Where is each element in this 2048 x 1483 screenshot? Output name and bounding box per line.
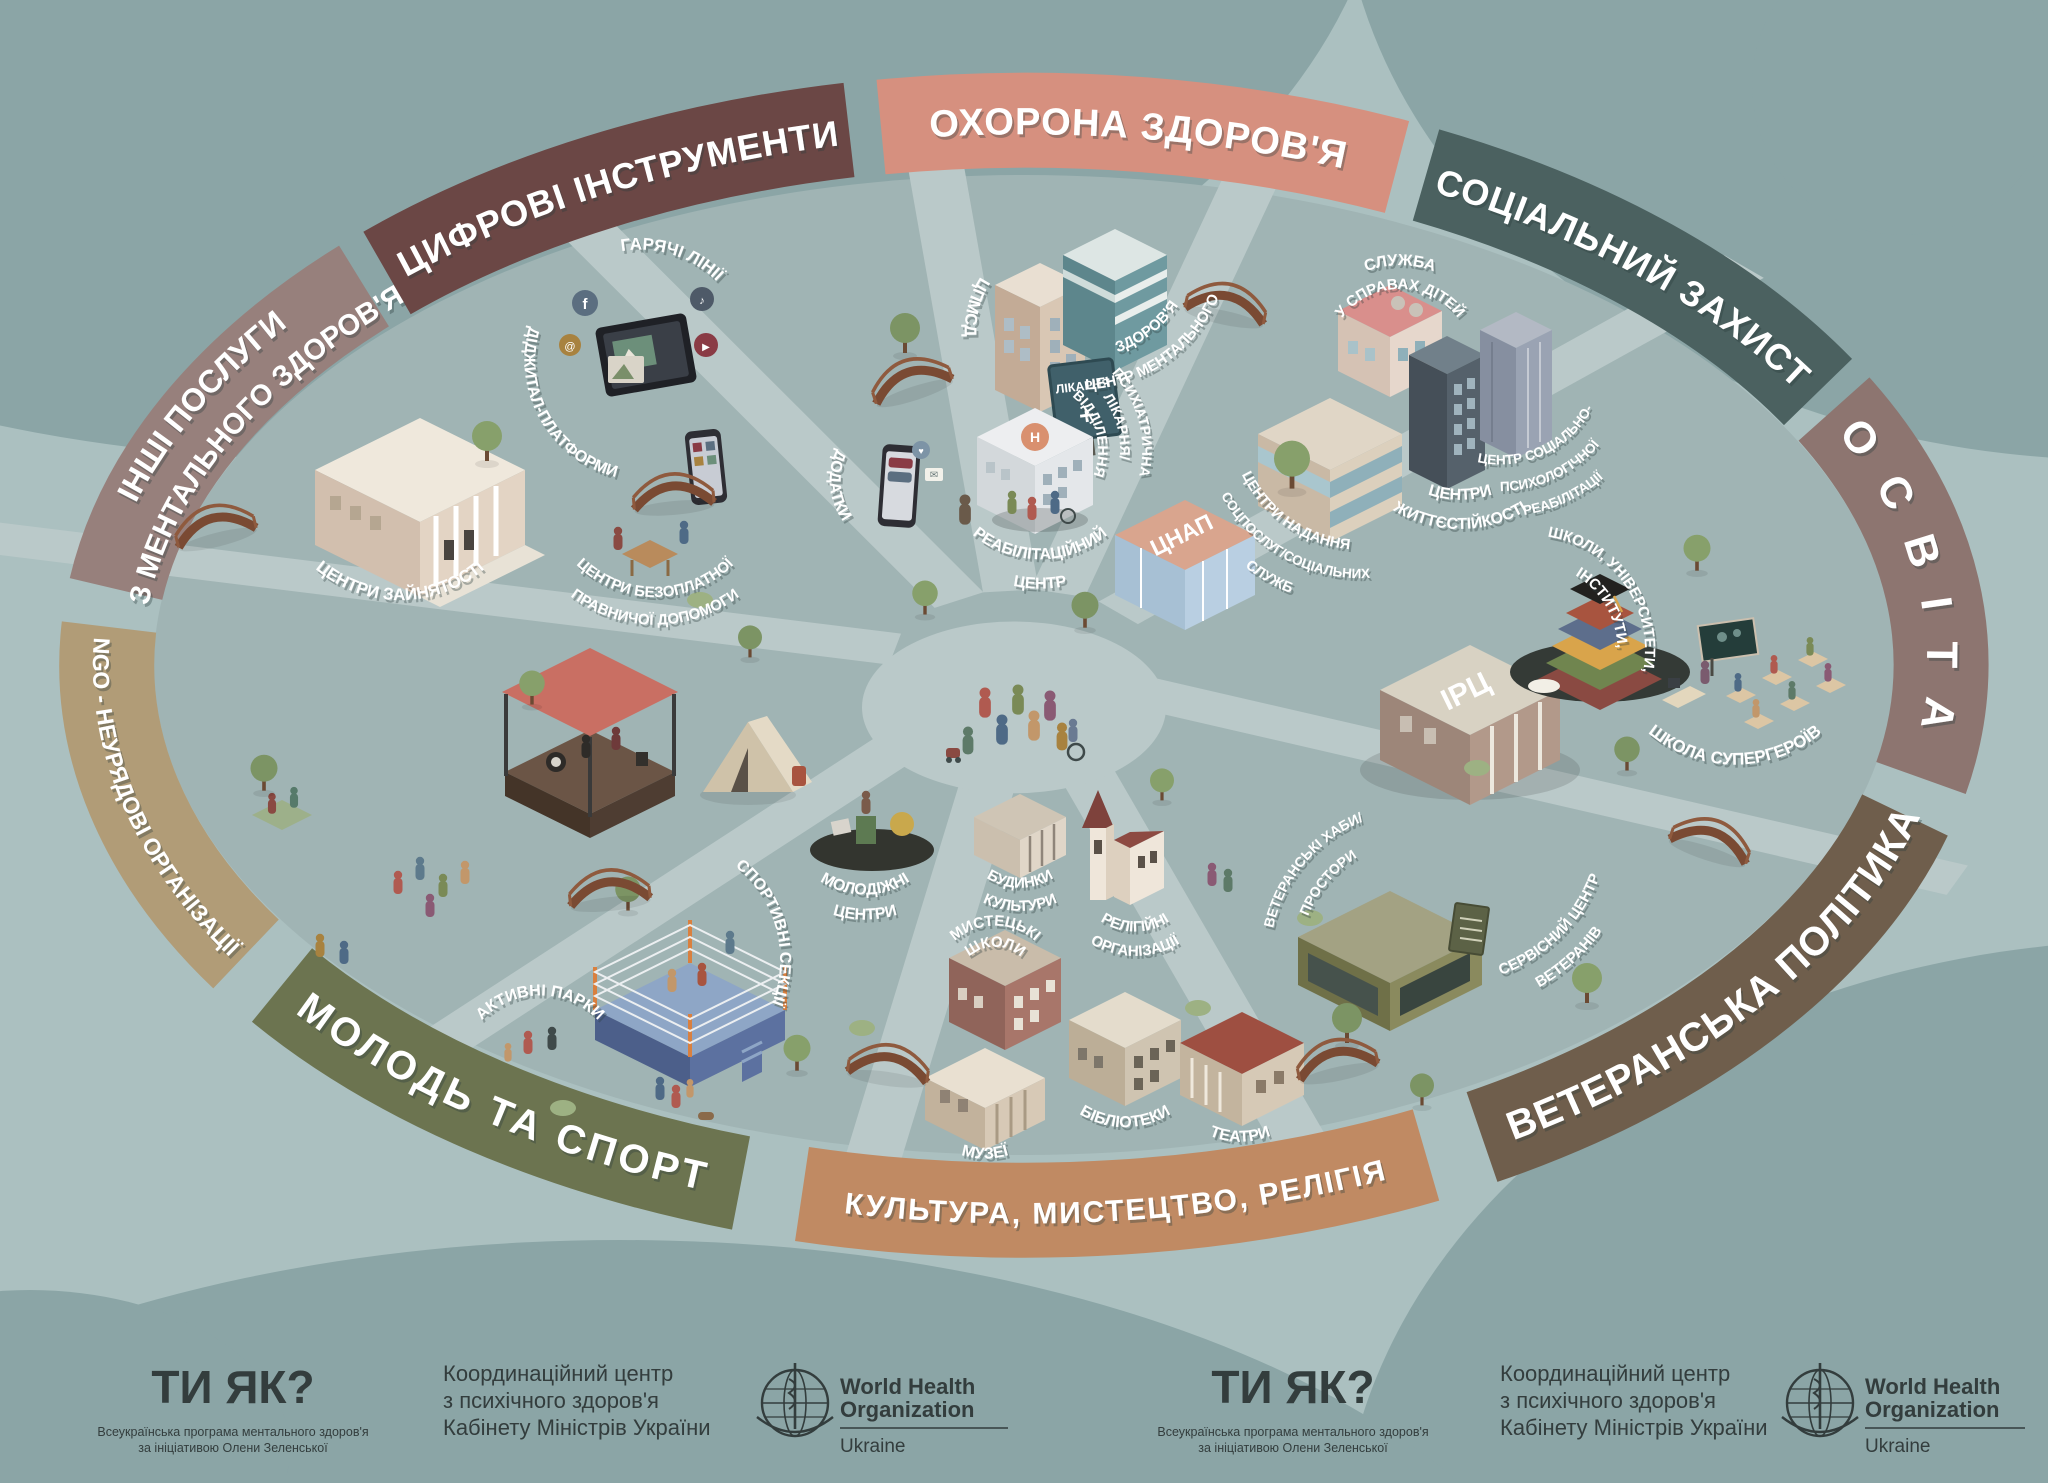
mental-health-center-building xyxy=(1063,229,1167,371)
who-name-2: Organization xyxy=(840,1397,974,1422)
coord-line-2: з психічного здоров'я xyxy=(443,1388,659,1413)
tyyak-subtitle-1: Всеукраїнська програма ментального здоро… xyxy=(97,1425,368,1439)
coord-line-1: Координаційний центр xyxy=(443,1361,673,1386)
coord-line-3: Кабінету Міністрів України xyxy=(443,1415,711,1440)
helipad-h: H xyxy=(1030,429,1040,445)
who-country: Ukraine xyxy=(1865,1436,1930,1457)
tyyak-subtitle-1: Всеукраїнська програма ментального здоро… xyxy=(1157,1425,1428,1439)
poster: ІНШІ ПОСЛУГИ З МЕНТАЛЬНОГО ЗДОРОВ'Я ЦИФР… xyxy=(0,0,2048,1483)
poster-canvas: ІНШІ ПОСЛУГИ З МЕНТАЛЬНОГО ЗДОРОВ'Я ЦИФР… xyxy=(0,0,2048,1483)
tyyak-logo: ТИ ЯК? xyxy=(151,1361,314,1413)
who-name-1: World Health xyxy=(1865,1374,2000,1399)
who-country: Ukraine xyxy=(840,1436,905,1457)
heart-icon: ♥ xyxy=(918,446,923,456)
at-icon: @ xyxy=(564,341,575,353)
tyyak-logo: ТИ ЯК? xyxy=(1211,1361,1374,1413)
who-name-2: Organization xyxy=(1865,1397,1999,1422)
mail-icon: ✉ xyxy=(930,470,938,481)
coord-line-3: Кабінету Міністрів України xyxy=(1500,1415,1768,1440)
who-name-1: World Health xyxy=(840,1374,975,1399)
coord-line-2: з психічного здоров'я xyxy=(1500,1388,1716,1413)
label-rehab-2: ЦЕНТР xyxy=(1012,573,1068,593)
pedestrian xyxy=(959,494,971,524)
music-icon: ♪ xyxy=(699,295,705,307)
tyyak-subtitle-2: за ініціативою Олени Зеленської xyxy=(138,1441,328,1455)
resilience-center-building xyxy=(1409,336,1485,489)
play-icon: ▶ xyxy=(702,342,710,353)
tyyak-subtitle-2: за ініціативою Олени Зеленської xyxy=(1198,1441,1388,1455)
glass-tower-building xyxy=(1480,312,1552,458)
coord-line-1: Координаційний центр xyxy=(1500,1361,1730,1386)
